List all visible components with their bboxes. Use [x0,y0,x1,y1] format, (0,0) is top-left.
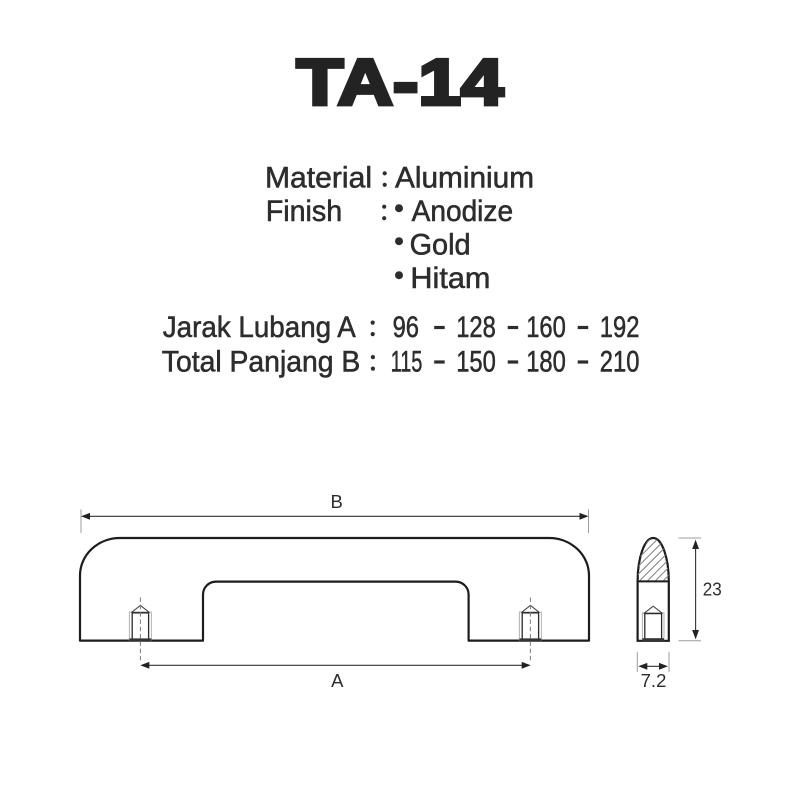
svg-text:180: 180 [526,347,566,379]
svg-text:A: A [331,670,344,691]
svg-text:96: 96 [393,312,419,344]
svg-text:7.2: 7.2 [641,670,667,691]
svg-text:Gold: Gold [410,229,471,261]
svg-text:TA-14: TA-14 [297,46,504,119]
svg-text:B: B [331,491,343,512]
svg-text:160: 160 [526,312,566,344]
svg-text:Jarak Lubang A: Jarak Lubang A [163,312,356,344]
svg-text:210: 210 [600,347,640,379]
svg-text:192: 192 [600,312,640,344]
svg-text:Material: Material [265,163,372,195]
svg-text:Anodize: Anodize [412,196,513,228]
svg-text:128: 128 [456,312,496,344]
svg-text:150: 150 [456,347,496,379]
svg-text:115: 115 [391,347,423,379]
svg-text:Finish: Finish [266,196,343,228]
svg-text:Total Panjang B: Total Panjang B [162,347,360,379]
svg-text:23: 23 [703,578,722,599]
svg-text:Aluminium: Aluminium [395,163,534,195]
svg-text:Hitam: Hitam [410,263,490,295]
